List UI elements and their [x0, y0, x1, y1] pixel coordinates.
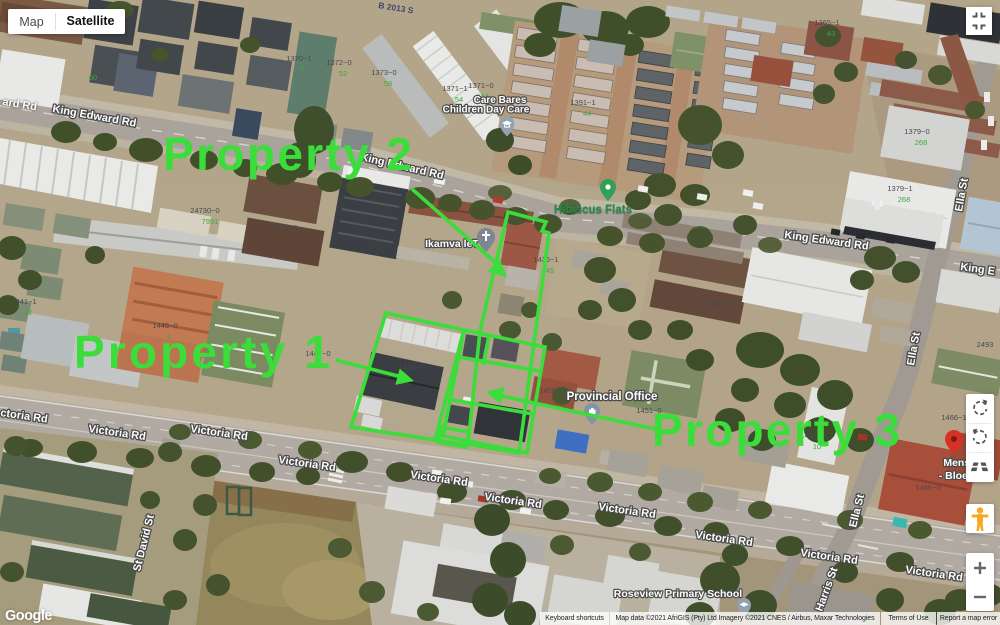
svg-text:60: 60: [89, 73, 97, 82]
svg-text:Property 2: Property 2: [163, 128, 412, 180]
svg-text:268: 268: [915, 138, 928, 147]
svg-text:1466~0: 1466~0: [915, 483, 940, 492]
svg-text:4: 4: [300, 64, 304, 73]
svg-text:1372~0: 1372~0: [326, 58, 351, 67]
svg-text:2493: 2493: [977, 340, 994, 349]
svg-text:1379~1: 1379~1: [887, 184, 912, 193]
svg-text:24730~0: 24730~0: [190, 206, 219, 215]
svg-text:1441~1: 1441~1: [11, 297, 36, 306]
svg-text:42: 42: [24, 308, 32, 317]
svg-text:1371~0: 1371~0: [468, 81, 493, 90]
svg-text:1371~1: 1371~1: [442, 84, 467, 93]
svg-text:1370~1: 1370~1: [286, 54, 311, 63]
svg-text:1450~0: 1450~0: [539, 386, 564, 395]
svg-text:Property 1: Property 1: [74, 326, 330, 378]
svg-text:58: 58: [384, 79, 392, 88]
svg-text:1466~1: 1466~1: [941, 413, 966, 422]
svg-text:Hibiscus Flats: Hibiscus Flats: [554, 204, 632, 216]
svg-text:43: 43: [827, 29, 835, 38]
svg-text:268: 268: [898, 195, 911, 204]
svg-text:1365~1: 1365~1: [814, 18, 839, 27]
svg-text:2644~0: 2644~0: [708, 299, 733, 308]
svg-text:1379~0: 1379~0: [904, 127, 929, 136]
svg-text:1448~0: 1448~0: [398, 363, 423, 372]
svg-text:54: 54: [455, 95, 463, 104]
svg-text:Provincial Office: Provincial Office: [567, 391, 658, 403]
svg-text:1391~1: 1391~1: [570, 98, 595, 107]
svg-text:Children Day Care: Children Day Care: [443, 105, 530, 116]
svg-text:Property 3: Property 3: [652, 404, 900, 456]
svg-text:52: 52: [339, 69, 347, 78]
svg-text:Roseview Primary School: Roseview Primary School: [614, 588, 742, 600]
svg-text:45: 45: [546, 266, 554, 275]
svg-text:1434~0~1: 1434~0~1: [264, 223, 298, 232]
svg-text:7951: 7951: [202, 217, 219, 226]
svg-text:1373~0: 1373~0: [371, 68, 396, 77]
svg-text:44: 44: [583, 109, 591, 118]
